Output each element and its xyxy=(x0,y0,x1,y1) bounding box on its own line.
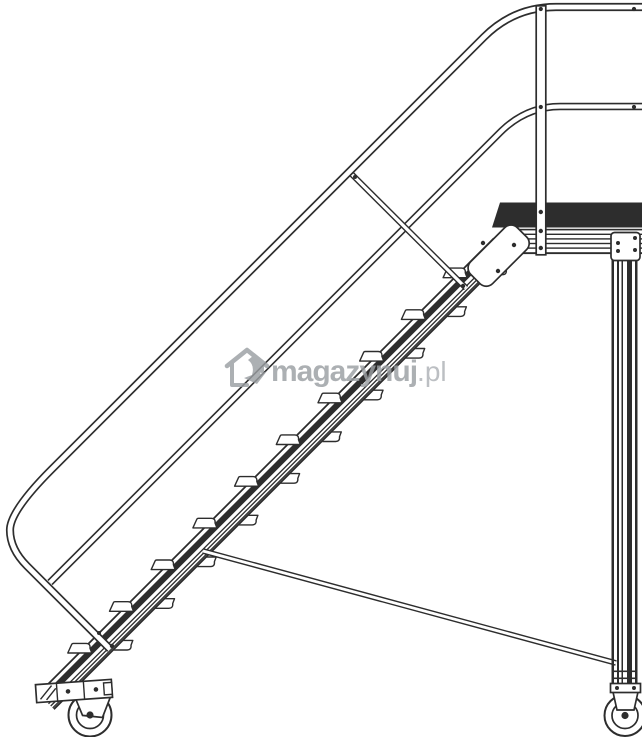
rear-leg xyxy=(612,255,638,684)
left-caster-hub xyxy=(86,711,93,718)
handrail xyxy=(10,7,642,649)
step-tab xyxy=(68,643,92,653)
watermark: magazynuj.pl xyxy=(227,350,447,388)
step-tab xyxy=(193,518,217,528)
step-tab xyxy=(318,393,342,403)
step-tab xyxy=(276,435,300,445)
watermark-brand: magazynuj xyxy=(271,355,417,388)
platform-deck-edge xyxy=(492,203,642,228)
technical-drawing-page: magazynuj.pl xyxy=(0,0,642,737)
step-tab xyxy=(151,560,175,570)
step-tab xyxy=(401,310,425,320)
guardrail-post xyxy=(536,6,546,255)
stringer-dark-stripe xyxy=(41,241,501,701)
step-tab xyxy=(235,477,259,487)
warehouse-icon xyxy=(227,350,267,385)
ladder-drawing-svg: magazynuj.pl xyxy=(0,0,642,737)
step-tab xyxy=(110,602,134,612)
diagonal-brace xyxy=(203,551,616,663)
right-caster xyxy=(605,684,642,737)
left-caster xyxy=(35,679,112,736)
watermark-text: magazynuj.pl xyxy=(271,355,447,388)
stringer-bottom-edge xyxy=(53,253,510,710)
stringer-top-edge xyxy=(38,238,495,695)
stair-stringer xyxy=(38,238,510,710)
handrail-baluster xyxy=(352,175,466,289)
right-caster-fork xyxy=(613,692,638,710)
right-caster-hub xyxy=(621,712,628,719)
watermark-suffix: .pl xyxy=(417,356,447,387)
stringer-body xyxy=(38,238,510,710)
